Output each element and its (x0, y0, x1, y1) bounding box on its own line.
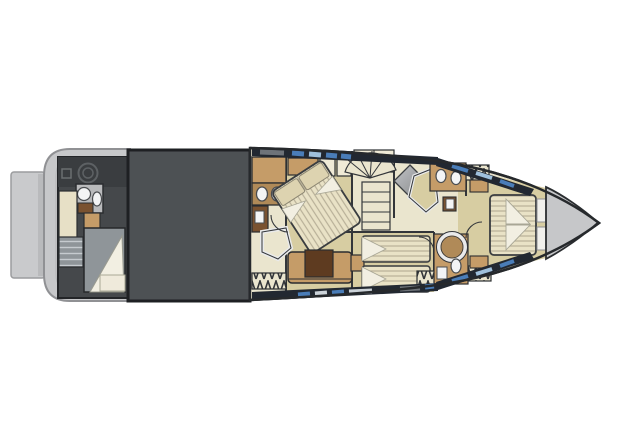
sink-icon (436, 170, 446, 183)
crew-bunk (59, 237, 83, 267)
engine-room (128, 150, 250, 301)
master-sofa (288, 250, 352, 283)
window-segment (309, 154, 321, 155)
window-segment (315, 293, 327, 294)
window-segment (292, 153, 304, 154)
crew-bathroom (76, 184, 103, 213)
pillow (100, 275, 125, 291)
sofa-cushion (305, 250, 333, 277)
window-segment (332, 292, 344, 293)
window-segment (298, 294, 310, 295)
round-shower (439, 234, 466, 261)
floor-plan-canvas (0, 0, 640, 448)
window-segment (260, 152, 284, 153)
sink-icon (451, 259, 461, 273)
locker-hatch (252, 273, 286, 289)
toilet-icon (93, 192, 102, 206)
twin-bed-1 (362, 236, 430, 262)
yacht-floor-plan (0, 0, 640, 448)
toilet-icon (437, 267, 447, 279)
toilet-icon (255, 211, 264, 223)
crew-cabin (58, 157, 128, 298)
crew-bed (84, 228, 125, 292)
sink-icon (257, 187, 268, 201)
window-segment (341, 156, 351, 157)
bow-deck (546, 187, 598, 259)
swim-platform (11, 172, 45, 278)
stair-steps (362, 182, 390, 230)
sink-icon (78, 188, 91, 201)
window-segment (326, 155, 337, 156)
